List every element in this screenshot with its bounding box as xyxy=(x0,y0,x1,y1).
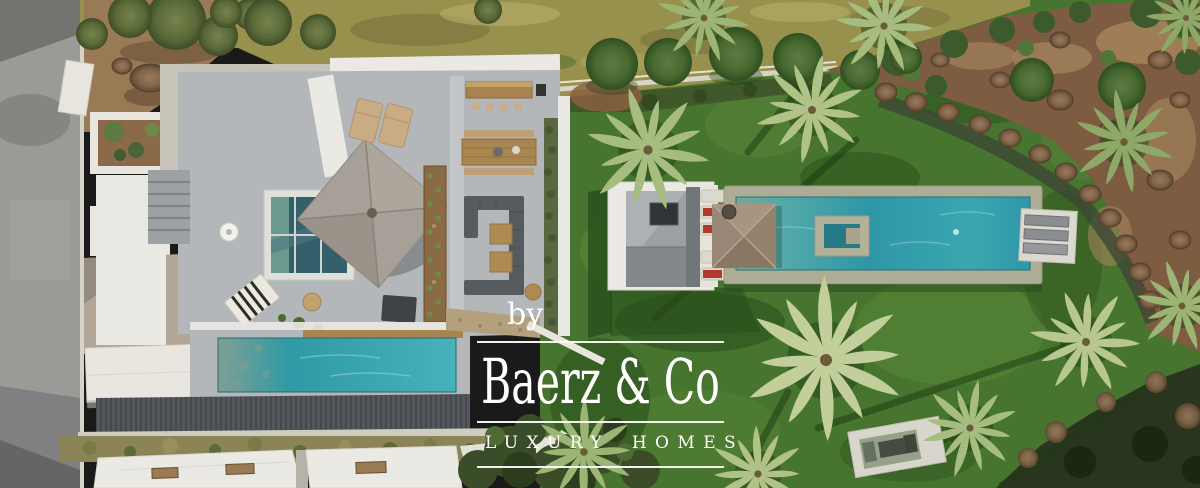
watermark-rule xyxy=(477,466,724,468)
chimney xyxy=(722,205,736,219)
slatted-slope xyxy=(96,394,470,434)
main-pool xyxy=(218,330,463,392)
outdoor-dining-table xyxy=(462,130,536,175)
brand-watermark: by Baerz & Co LUXURY HOMES xyxy=(477,299,724,468)
fire-pit xyxy=(381,295,417,323)
planter-bed xyxy=(90,112,170,174)
roof-skylight xyxy=(650,203,678,225)
side-table xyxy=(303,293,321,311)
pool-spa xyxy=(815,216,869,256)
lounger-deck xyxy=(1019,209,1078,264)
terrace-planter xyxy=(424,166,446,322)
pool-pavilion xyxy=(712,204,782,268)
stairs xyxy=(148,170,190,244)
aerial-photo: by Baerz & Co LUXURY HOMES xyxy=(0,0,1200,488)
watermark-rule xyxy=(477,421,724,423)
